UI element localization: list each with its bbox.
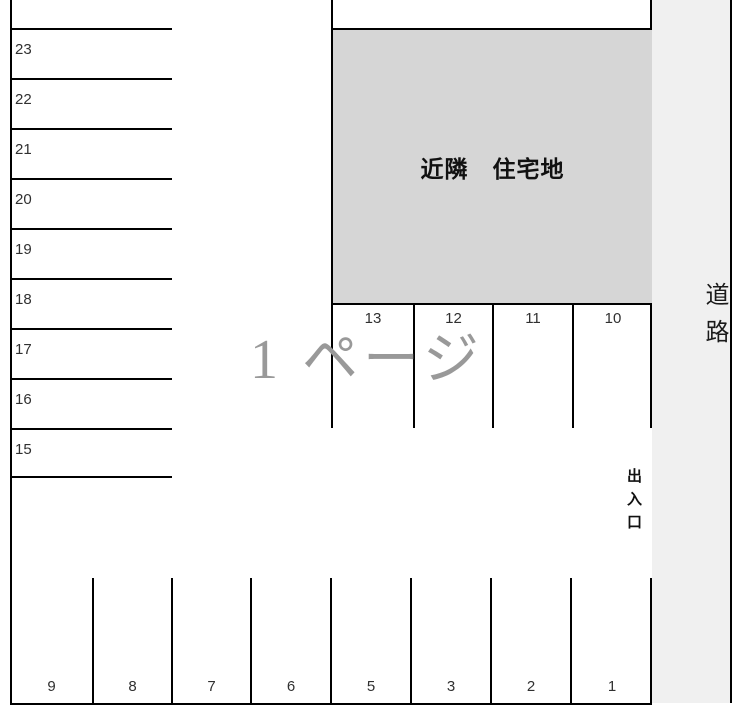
- parking-space-19: 19: [11, 228, 172, 278]
- parking-space-9: 9: [11, 578, 92, 703]
- parking-space-6: 6: [250, 578, 330, 703]
- parking-space-16: 16: [11, 378, 172, 428]
- parking-space-22: 22: [11, 78, 172, 128]
- parking-space-11: 11: [492, 303, 572, 428]
- parking-space-15: 15: [11, 428, 172, 478]
- left-column-spaces: 23 22 21 20 19 18 17 16 15: [11, 28, 172, 478]
- block-top-stub-line: [331, 0, 333, 30]
- parking-space-5: 5: [330, 578, 410, 703]
- page-watermark: 1 ページ: [250, 314, 484, 395]
- parking-space-8: 8: [92, 578, 171, 703]
- neighborhood-label: 近隣 住宅地: [421, 150, 565, 184]
- parking-space-17: 17: [11, 328, 172, 378]
- neighborhood-block: 近隣 住宅地: [331, 28, 652, 305]
- parking-space-20: 20: [11, 178, 172, 228]
- parking-space-23: 23: [11, 28, 172, 78]
- road-label: 道路: [652, 282, 732, 356]
- parking-space-2: 2: [490, 578, 570, 703]
- bottom-row-spaces: 9 8 7 6 5 3 2 1: [11, 578, 652, 705]
- parking-layout-diagram: 道路 出入口 近隣 住宅地 23 22 21 20 19 18 17 16 15…: [0, 0, 749, 713]
- parking-space-1: 1: [570, 578, 652, 703]
- parking-space-7: 7: [171, 578, 250, 703]
- entrance-exit-label: 出入口: [622, 468, 644, 537]
- parking-space-10: 10: [572, 303, 652, 428]
- parking-space-18: 18: [11, 278, 172, 328]
- parking-space-3: 3: [410, 578, 490, 703]
- parking-space-21: 21: [11, 128, 172, 178]
